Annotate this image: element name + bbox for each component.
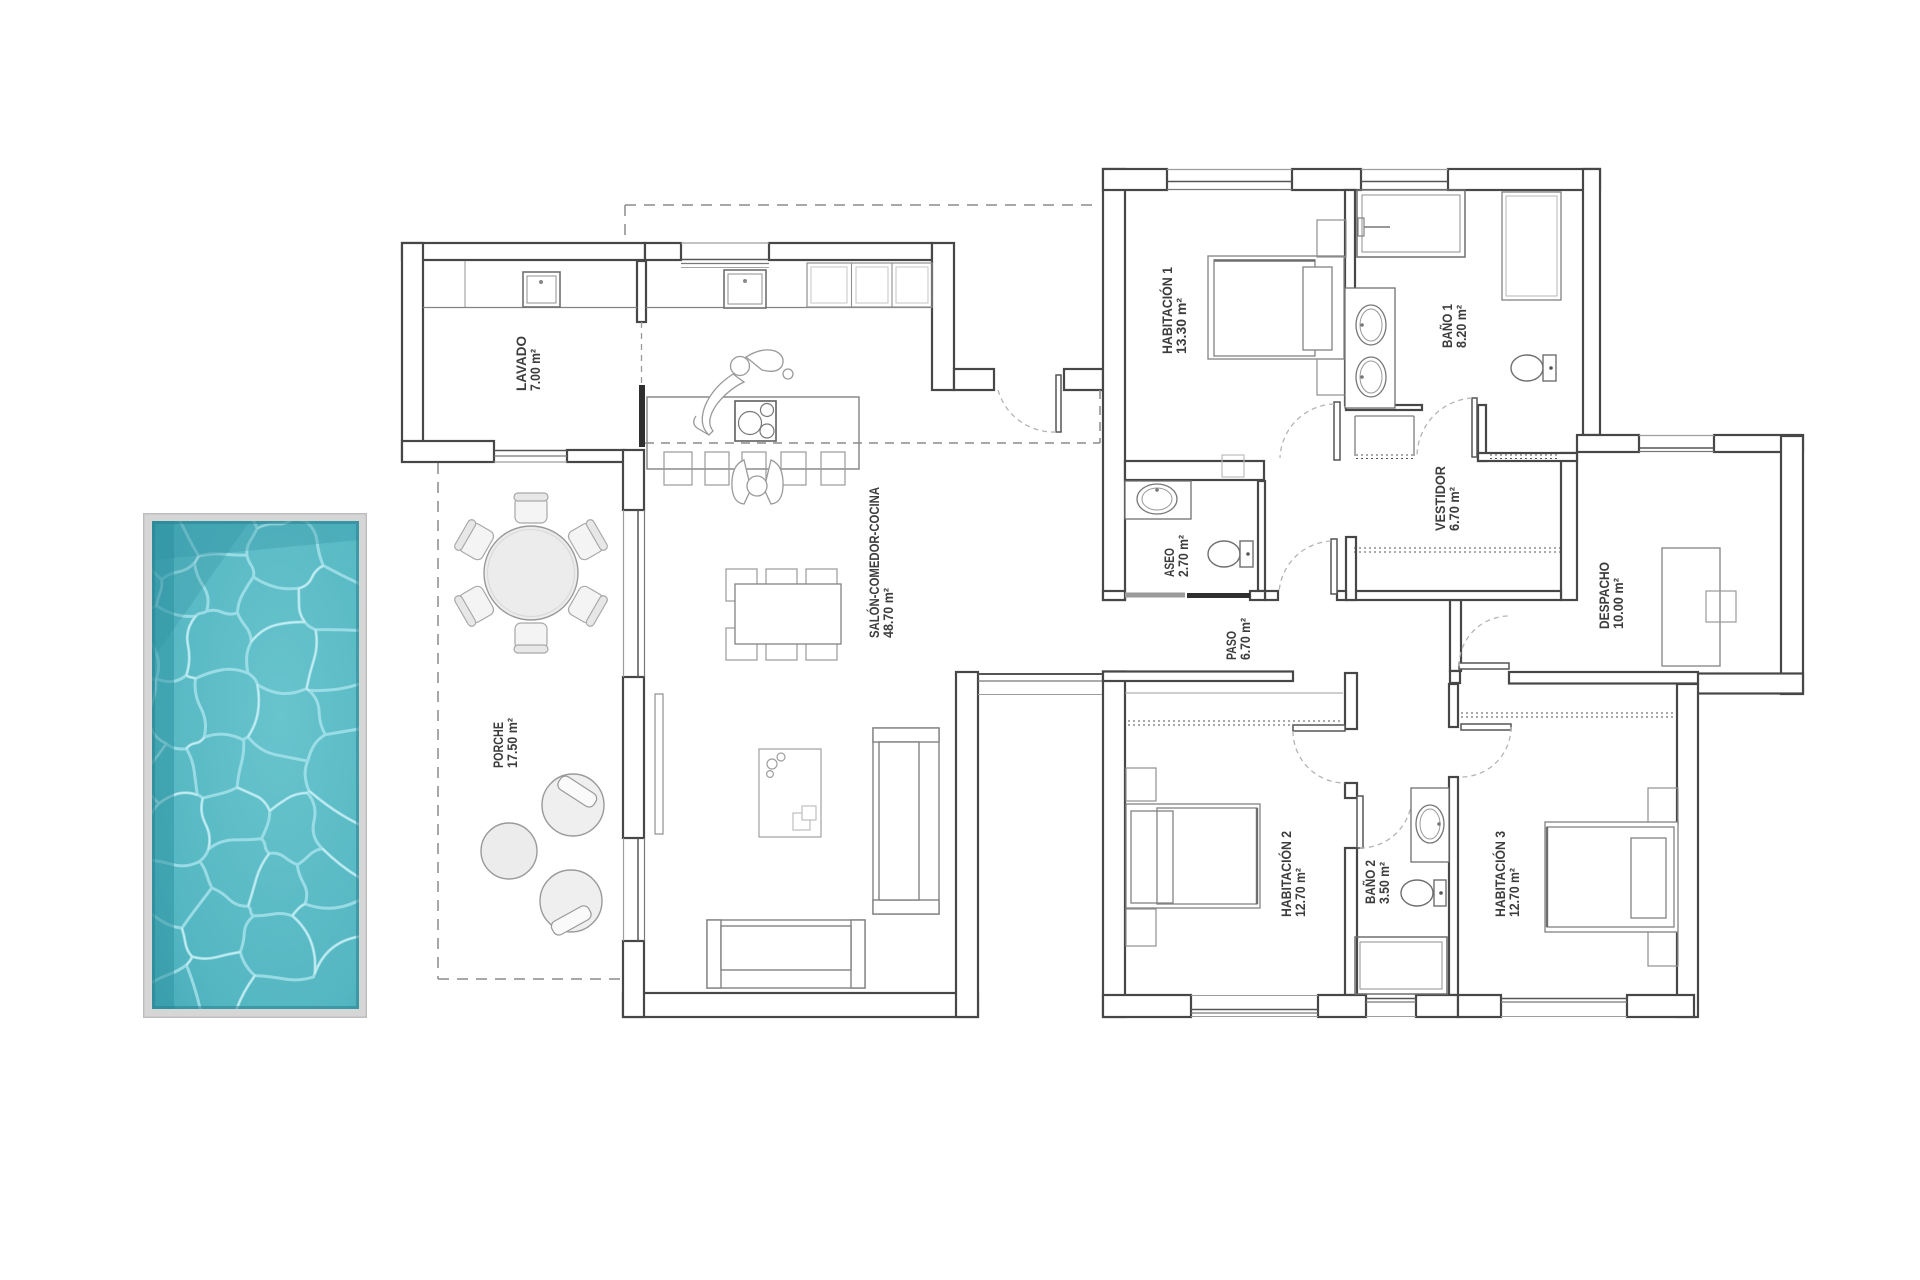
svg-text:7.00 m²: 7.00 m² — [527, 349, 543, 391]
svg-text:17.50 m²: 17.50 m² — [504, 718, 520, 768]
svg-text:12.70 m²: 12.70 m² — [1506, 868, 1522, 917]
svg-text:6.70 m²: 6.70 m² — [1237, 618, 1253, 660]
svg-text:6.70 m²: 6.70 m² — [1446, 487, 1462, 531]
svg-text:12.70 m²: 12.70 m² — [1292, 868, 1308, 917]
svg-text:2.70 m²: 2.70 m² — [1175, 535, 1191, 577]
svg-text:48.70 m²: 48.70 m² — [880, 588, 896, 638]
svg-text:13.30 m²: 13.30 m² — [1173, 298, 1189, 354]
svg-text:3.50 m²: 3.50 m² — [1376, 862, 1392, 904]
svg-text:8.20 m²: 8.20 m² — [1453, 305, 1469, 348]
svg-text:10.00 m²: 10.00 m² — [1610, 578, 1626, 629]
